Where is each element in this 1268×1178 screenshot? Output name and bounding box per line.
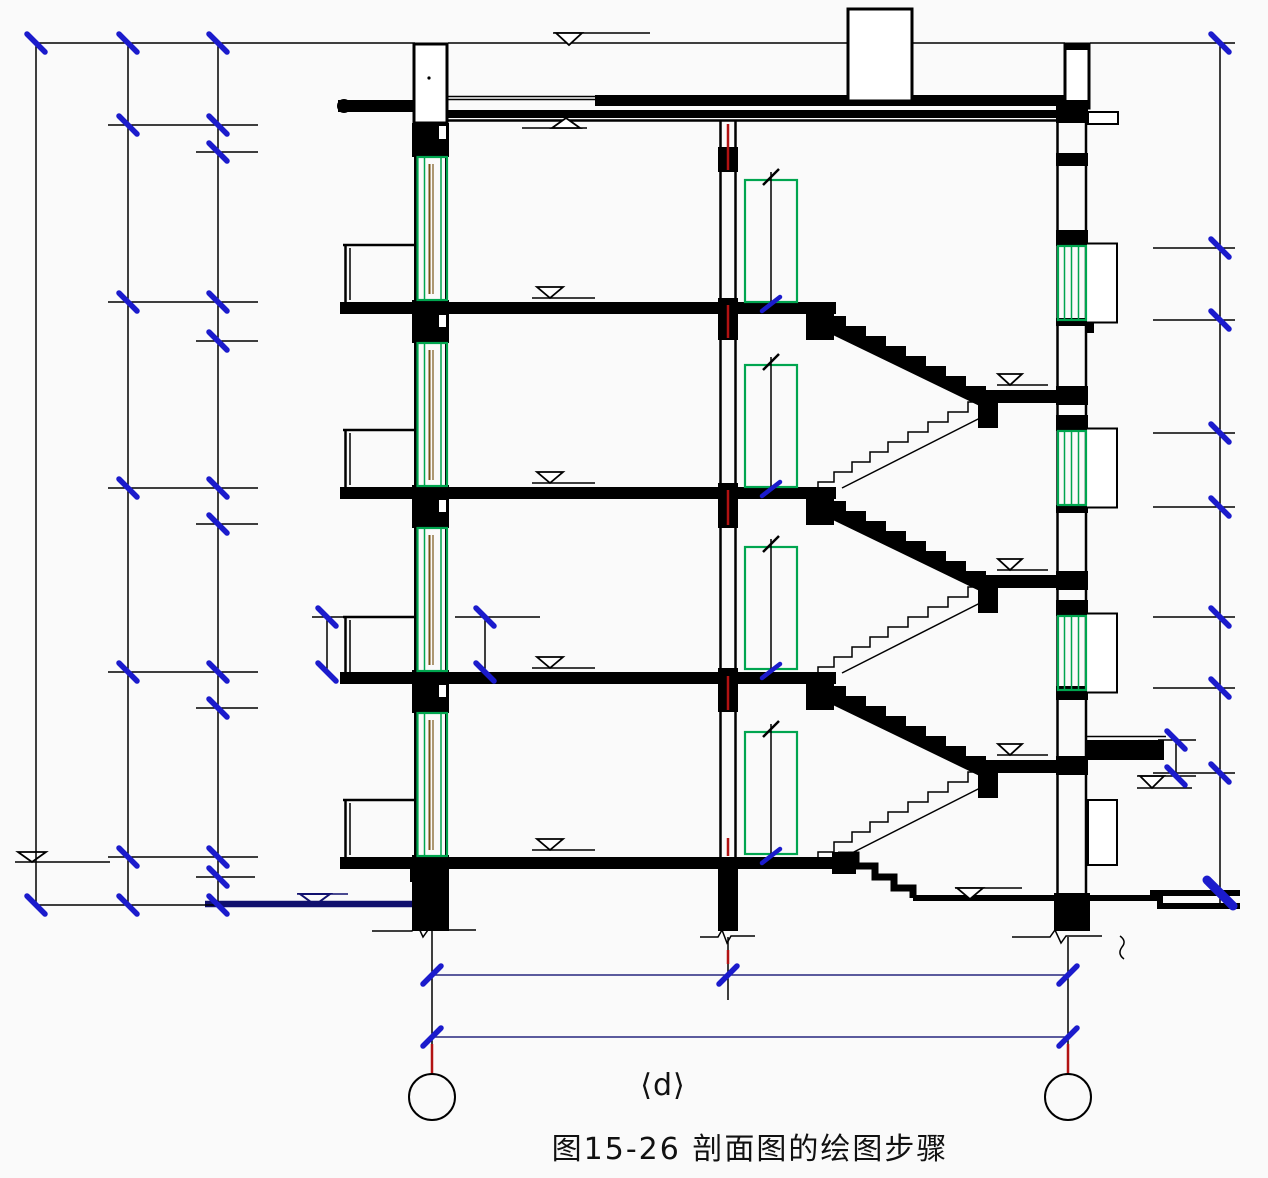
roof-structure: [337, 9, 1118, 124]
bottom-dimensions: [409, 931, 1091, 1120]
foundation-break-lines: [372, 924, 1124, 959]
left-parapet: [414, 44, 447, 123]
staircase: [806, 306, 1240, 906]
roof-chimney: [848, 9, 912, 101]
left-dimension-ticks: [27, 34, 227, 914]
axis-bubble-right: [1045, 1074, 1091, 1120]
middle-wall: [718, 120, 738, 931]
panel-label: ⟨d⟩: [593, 1068, 733, 1103]
right-parapet: [1065, 44, 1089, 108]
floor-level-markers: [532, 287, 595, 850]
right-exterior-wall: [1054, 100, 1166, 931]
bottom-dimension-ticks: [423, 966, 1077, 1046]
entry-canopy: [1086, 740, 1164, 760]
balcony-railings: [343, 245, 415, 857]
entry-door-frame: [1088, 800, 1117, 865]
left-dimension-chain: [27, 34, 258, 914]
section-drawing-figure: ⟨d⟩ 图15-26 剖面图的绘图步骤: [0, 0, 1268, 1178]
axis-bubble-left: [409, 1074, 455, 1120]
building-section-drawing: [0, 0, 1268, 1178]
ground-line-left: [205, 894, 412, 905]
right-wall-ledge: [1088, 112, 1118, 124]
right-windows: [1058, 244, 1117, 693]
figure-caption: 图15-26 剖面图的绘图步骤: [480, 1124, 1020, 1168]
interior-doors: [745, 169, 797, 863]
